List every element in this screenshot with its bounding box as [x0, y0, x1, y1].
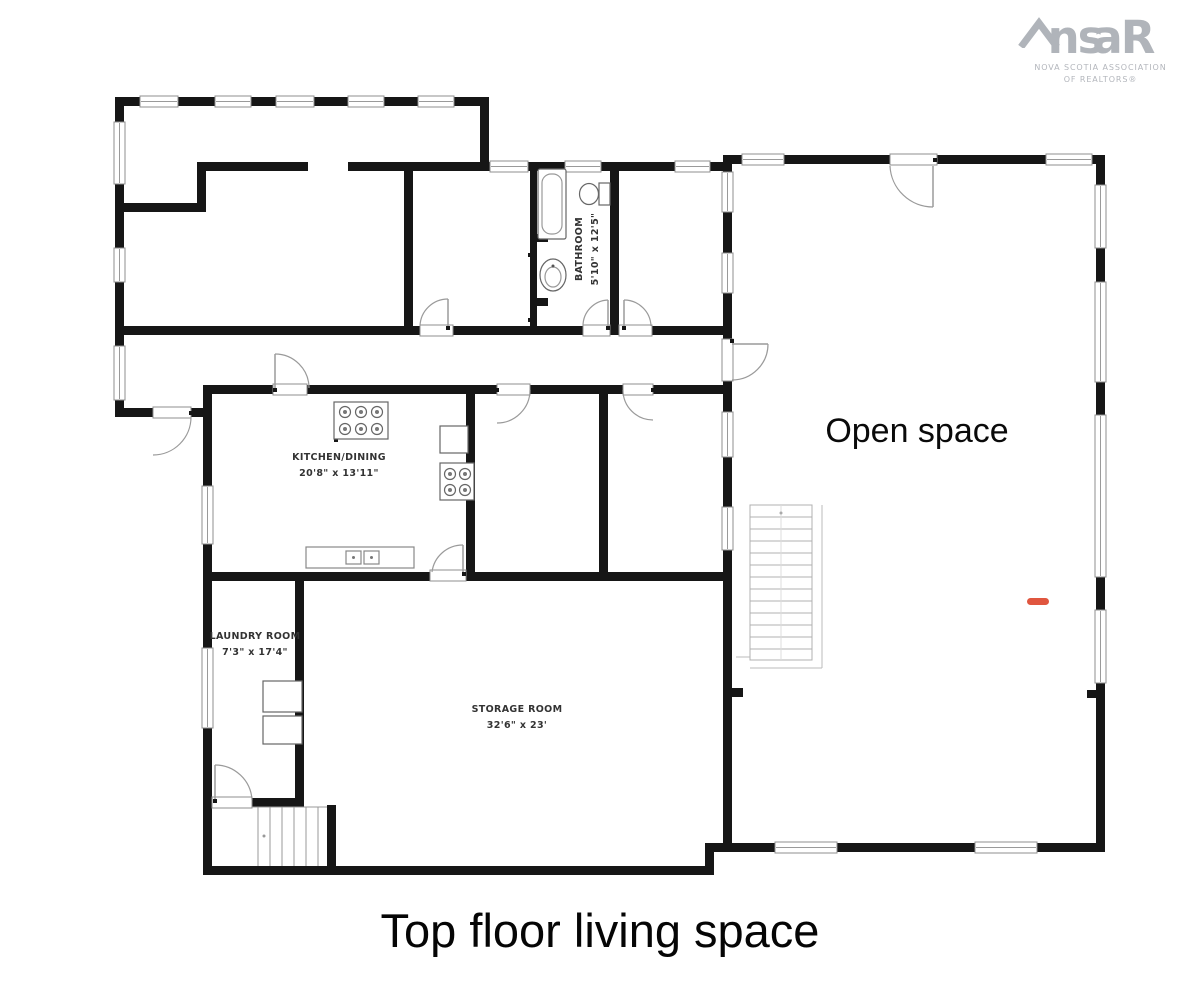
bathtub-icon — [538, 169, 566, 239]
dryer-icon — [263, 716, 302, 744]
room-name: BATHROOM — [572, 179, 588, 319]
staircase-basement-icon — [252, 807, 327, 866]
room-dims: 32'6" x 23' — [417, 718, 617, 734]
nsar-logo-wordmark: ns aR — [1018, 16, 1183, 60]
room-name: KITCHEN/DINING — [239, 450, 439, 466]
logo-text-right: aR — [1092, 16, 1153, 60]
room-label-laundry: LAUNDRY ROOM 7'3" x 17'4" — [155, 629, 355, 661]
room-dims: 5'10" x 12'5" — [588, 179, 604, 319]
nsar-logo: ns aR NOVA SCOTIA ASSOCIATION OF REALTOR… — [1018, 16, 1183, 86]
kitchen-sink-icon — [440, 426, 468, 453]
logo-tagline-1: NOVA SCOTIA ASSOCIATION — [1018, 62, 1183, 74]
page-title: Top floor living space — [0, 903, 1200, 958]
red-marker — [1027, 598, 1049, 605]
logo-tagline-2: OF REALTORS® — [1018, 74, 1183, 86]
washer-icon — [263, 681, 302, 712]
walls-group — [115, 97, 1105, 875]
floor-plan-drawing — [0, 0, 1200, 983]
room-label-storage: STORAGE ROOM 32'6" x 23' — [417, 702, 617, 734]
room-dims: 7'3" x 17'4" — [155, 645, 355, 661]
fixtures-group — [252, 169, 1049, 866]
cooktop-icon — [440, 463, 474, 500]
room-name: LAUNDRY ROOM — [155, 629, 355, 645]
stove-icon — [334, 402, 388, 439]
floor-plan-image: BATHROOM 5'10" x 12'5" KITCHEN/DINING 20… — [0, 0, 1200, 983]
room-name: STORAGE ROOM — [417, 702, 617, 718]
floor-plan-page: { "logo": { "text_left": "ns", "text_rig… — [0, 0, 1200, 983]
kitchen-island-icon — [306, 547, 414, 568]
bathroom-sink-icon — [540, 259, 566, 291]
room-dims: 20'8" x 13'11" — [239, 466, 439, 482]
staircase-main-icon — [736, 505, 822, 668]
room-label-bathroom: BATHROOM 5'10" x 12'5" — [572, 179, 604, 319]
room-label-kitchen: KITCHEN/DINING 20'8" x 13'11" — [239, 450, 439, 482]
room-label-open-space: Open space — [767, 412, 1067, 451]
